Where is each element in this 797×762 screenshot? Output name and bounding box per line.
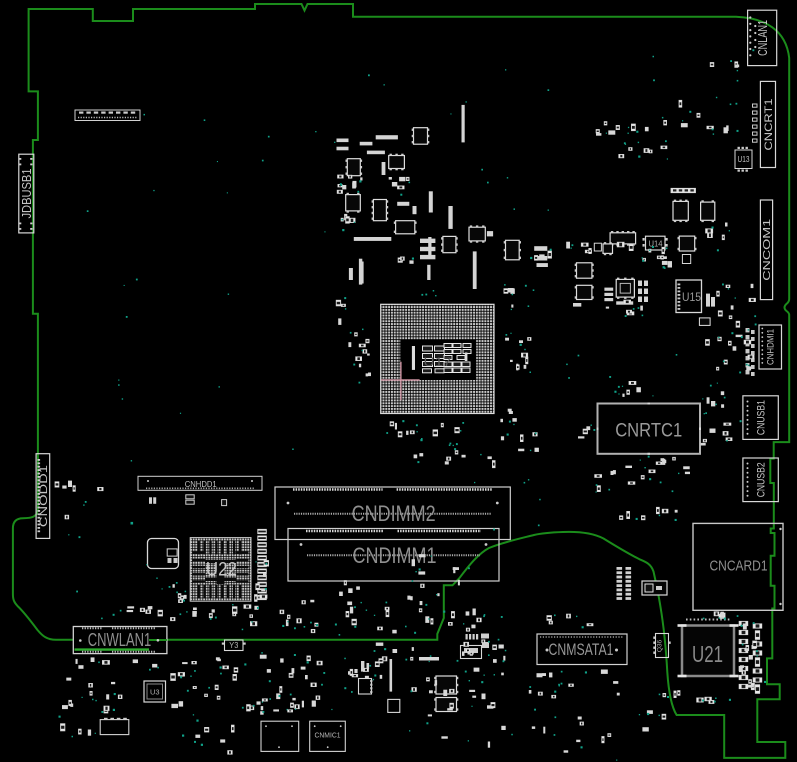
svg-text:CNCRT1: CNCRT1 xyxy=(763,99,775,151)
svg-text:U21: U21 xyxy=(692,641,723,667)
svg-text:CNCARD1: CNCARD1 xyxy=(710,559,768,575)
svg-text:CNHDD1: CNHDD1 xyxy=(185,479,217,489)
svg-text:U14: U14 xyxy=(649,239,663,249)
svg-text:U17: U17 xyxy=(424,357,452,369)
svg-text:CNRTC1: CNRTC1 xyxy=(615,421,682,442)
svg-text:Q36: Q36 xyxy=(657,639,664,652)
svg-text:U13: U13 xyxy=(738,155,750,164)
svg-text:CNDIMM2: CNDIMM2 xyxy=(352,501,436,526)
svg-text:CNUSB1: CNUSB1 xyxy=(756,400,768,435)
svg-text:CNMIC1: CNMIC1 xyxy=(315,733,341,740)
svg-text:Y3: Y3 xyxy=(229,641,238,650)
svg-text:U15: U15 xyxy=(682,290,701,304)
svg-text:JDBUSB1: JDBUSB1 xyxy=(19,169,34,219)
svg-text:CNWLAN1: CNWLAN1 xyxy=(88,629,152,650)
svg-text:U22: U22 xyxy=(206,560,237,581)
svg-text:U3: U3 xyxy=(150,688,160,697)
svg-text:CNCOM1: CNCOM1 xyxy=(762,218,773,281)
svg-text:CNHDMI1: CNHDMI1 xyxy=(766,329,776,365)
svg-text:CNMSATA1: CNMSATA1 xyxy=(549,640,614,659)
svg-text:CNLAN1: CNLAN1 xyxy=(755,20,770,56)
svg-text:CNUSB2: CNUSB2 xyxy=(756,462,768,497)
